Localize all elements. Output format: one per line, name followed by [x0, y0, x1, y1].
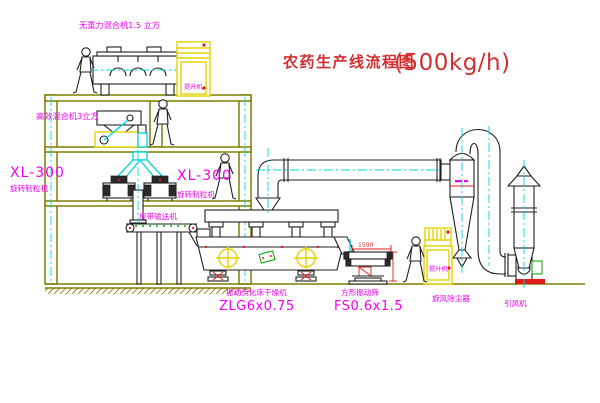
- cyclone-mark: [464, 180, 468, 182]
- sieve-model-label: FS0.6x1.5: [334, 299, 403, 314]
- floor-slab-2: [45, 147, 251, 152]
- belt-rollers: [135, 225, 186, 227]
- granulator-left: [103, 176, 135, 201]
- high-efficiency-mixer: [95, 111, 147, 147]
- diagram-canvas: 提升机: [0, 0, 600, 403]
- y-chute: [117, 152, 163, 177]
- fan-label: 引风机: [504, 298, 527, 308]
- sieve-width-dimension: 1500: [358, 242, 373, 249]
- granulator-model: XL-300: [177, 168, 232, 184]
- ground-hatch: [45, 288, 251, 294]
- granulator-right: [144, 176, 176, 201]
- exhaust-duct: [256, 148, 452, 214]
- belt-conveyor: [126, 224, 207, 284]
- vibrating-sieve: 1500: [344, 242, 397, 284]
- exhaust-hood: [205, 210, 338, 222]
- bucket-elevator-top: 提升机: [177, 42, 210, 96]
- elevator-top-label: 提升机: [184, 83, 203, 91]
- cyclone-mark: [455, 180, 462, 182]
- bucket-elevator-right: 提升机: [424, 228, 452, 284]
- gravity-free-mixer-label: 无重力混合机1.5 立方: [79, 20, 160, 30]
- gooseneck-inner: [470, 144, 478, 155]
- sieve-base: [349, 281, 387, 284]
- elevator-right-label: 提升机: [429, 265, 448, 273]
- sieve-deck-2: [346, 259, 390, 266]
- cad-flow-diagram: 提升机: [0, 0, 600, 403]
- high-efficiency-mixer-label: 高效混合机3立方: [36, 111, 99, 121]
- floor-slab-top: [45, 95, 251, 101]
- granulator-wall-name: 旋转制粒机: [10, 183, 48, 193]
- title-capacity: (500kg/h): [394, 50, 511, 76]
- fluid-bed-dryer: [196, 210, 355, 281]
- cyclone-dome: [450, 154, 474, 161]
- fan-base: [515, 279, 545, 284]
- sieve-deck-1: [344, 252, 392, 259]
- belt-conveyor-label: 皮带输送机: [139, 211, 177, 221]
- fan-motor: [532, 261, 542, 274]
- granulator-wall-model: XL-300: [10, 165, 65, 181]
- dryer-model-label: ZLG6x0.75: [219, 299, 295, 314]
- ground: [45, 284, 585, 294]
- mixer-chute: [138, 133, 147, 147]
- dryer-name-label: 振动流化床干燥机: [226, 287, 287, 297]
- floor-slab-3: [45, 201, 251, 206]
- cyclone-label: 旋风除尘器: [432, 293, 470, 303]
- dryer-supports: [208, 271, 316, 281]
- sieve-name-label: 方形振动筛: [341, 287, 379, 297]
- granulator-name: 旋转制粒机: [177, 189, 215, 199]
